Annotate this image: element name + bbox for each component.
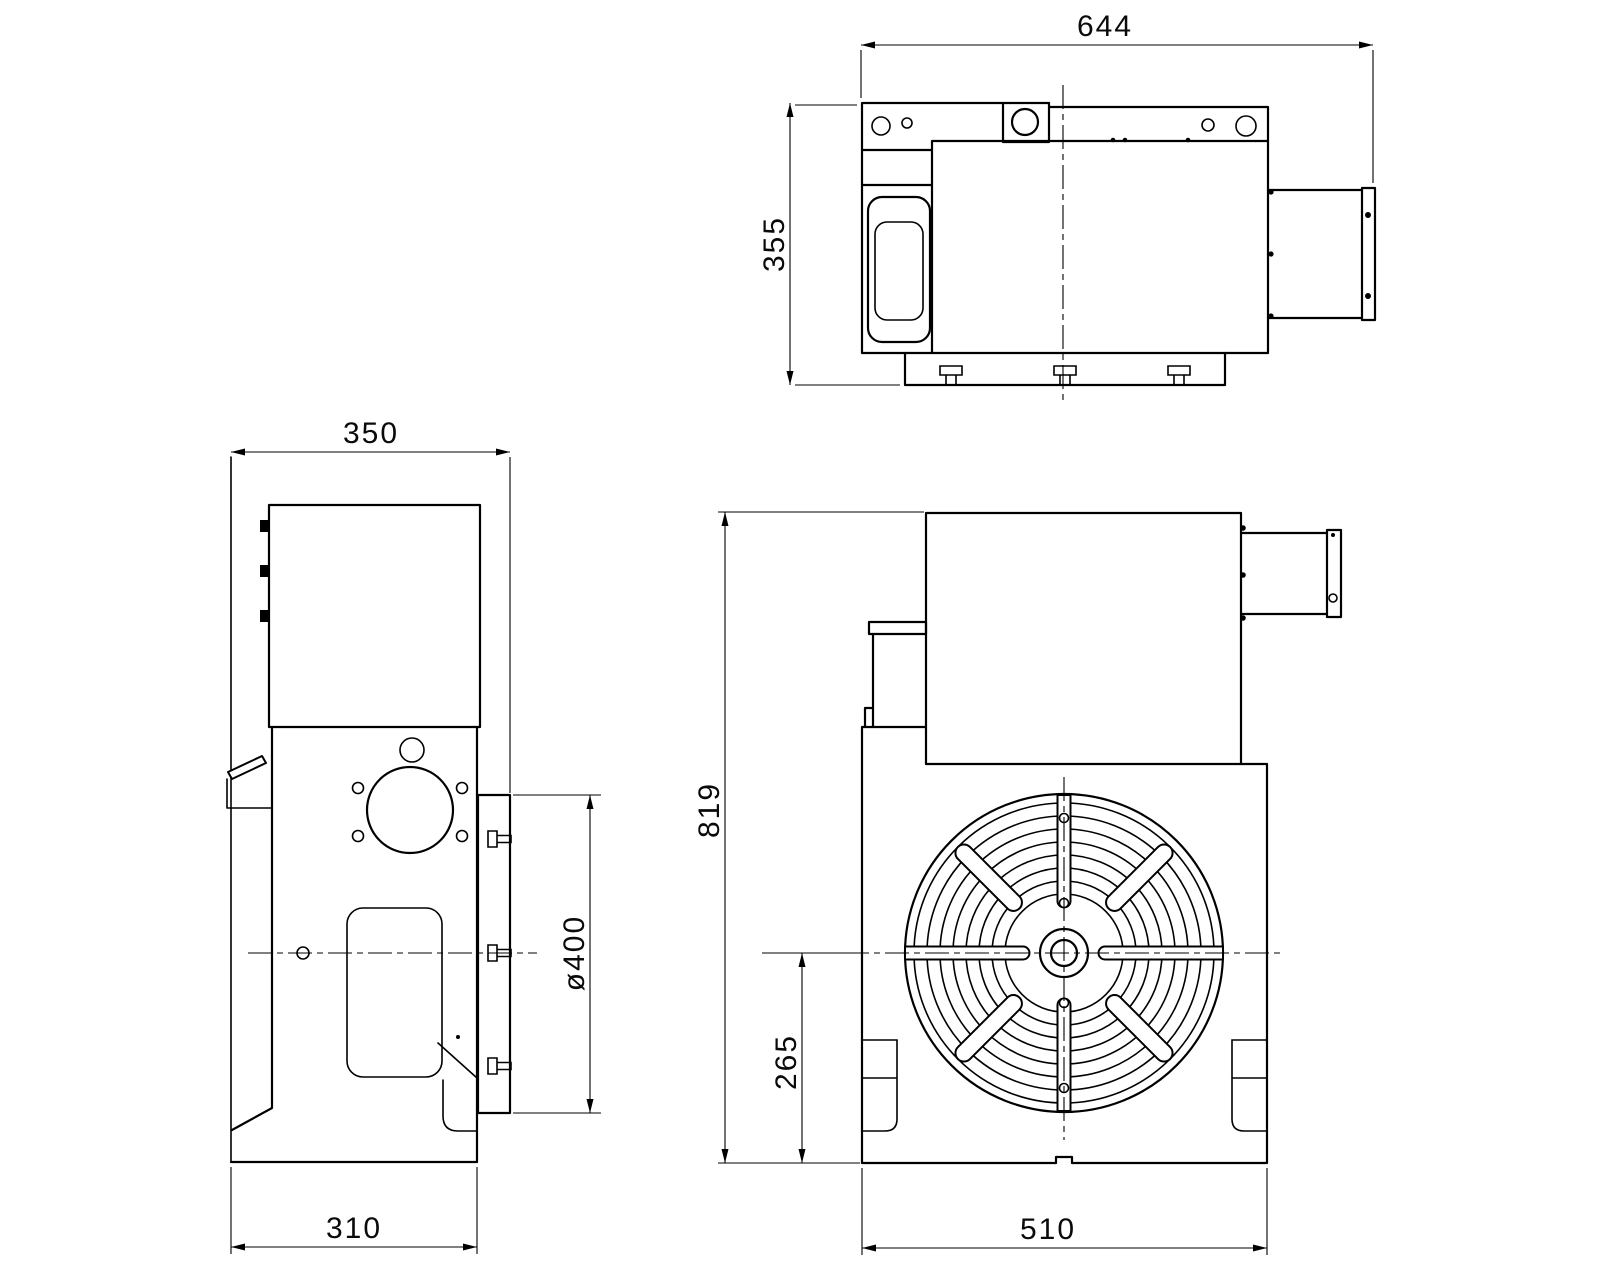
dimension-front-base-width: 510 [862, 1168, 1267, 1255]
dim-label-350: 350 [343, 417, 399, 450]
dim-label-diameter-400: ø400 [558, 915, 591, 991]
dimension-overall-width: 644 [861, 10, 1373, 183]
front-left-pad [862, 1040, 897, 1131]
top-bracket-hole [872, 117, 890, 135]
dim-label-819: 819 [693, 782, 726, 838]
dimension-table-diameter: ø400 [513, 795, 601, 1113]
top-motor-screw-dots [1268, 189, 1371, 318]
top-motor-housing [1268, 190, 1362, 318]
dimension-table-center-height: 265 [762, 953, 848, 1163]
top-strip-hole [1236, 116, 1256, 136]
front-left-box [865, 634, 873, 727]
side-top-block [269, 505, 480, 727]
side-view [227, 457, 537, 1162]
front-view [845, 513, 1341, 1163]
top-view-outline [862, 103, 1268, 353]
dimension-overall-height: 819 [693, 512, 924, 1163]
front-motor-flange-hole [1329, 594, 1337, 602]
front-motor-screw-dots [1240, 525, 1335, 621]
side-clamp-bracket-outline [227, 779, 272, 808]
top-handle-inner [875, 222, 923, 320]
dim-label-355: 355 [758, 216, 791, 272]
drawing-canvas: 644 355 350 ø400 310 819 265 [0, 0, 1600, 1280]
side-clamp-bracket [228, 756, 266, 779]
dim-label-510: 510 [1020, 1213, 1076, 1246]
top-motor-flange [1362, 188, 1375, 320]
side-cover-plate [347, 908, 442, 1077]
top-base-t-bolts [940, 366, 1190, 385]
front-motor-flange [1327, 530, 1341, 617]
top-strip-hole-small [1202, 119, 1214, 131]
drawing-sheet: 644 355 350 ø400 310 819 265 [0, 0, 1600, 1280]
top-base [905, 353, 1225, 385]
dim-label-644: 644 [1077, 10, 1133, 43]
top-bracket-hole-small [902, 118, 912, 128]
side-bolt-circle-holes [353, 783, 468, 842]
dim-label-310: 310 [326, 1212, 382, 1245]
side-spindle-bore [367, 767, 453, 853]
front-motor-housing [1241, 533, 1327, 614]
front-housing [926, 513, 1241, 764]
front-left-box-cap [869, 622, 926, 634]
top-view [862, 85, 1375, 400]
side-foot [438, 1043, 477, 1131]
top-clamp-knob [1012, 109, 1038, 135]
side-foot-dot [456, 1035, 460, 1039]
dimension-side-base-width: 310 [231, 1167, 477, 1254]
dim-label-265: 265 [770, 1034, 803, 1090]
front-right-pad [1232, 1040, 1267, 1131]
side-screw-marks [260, 520, 269, 622]
side-top-hole [400, 738, 424, 762]
